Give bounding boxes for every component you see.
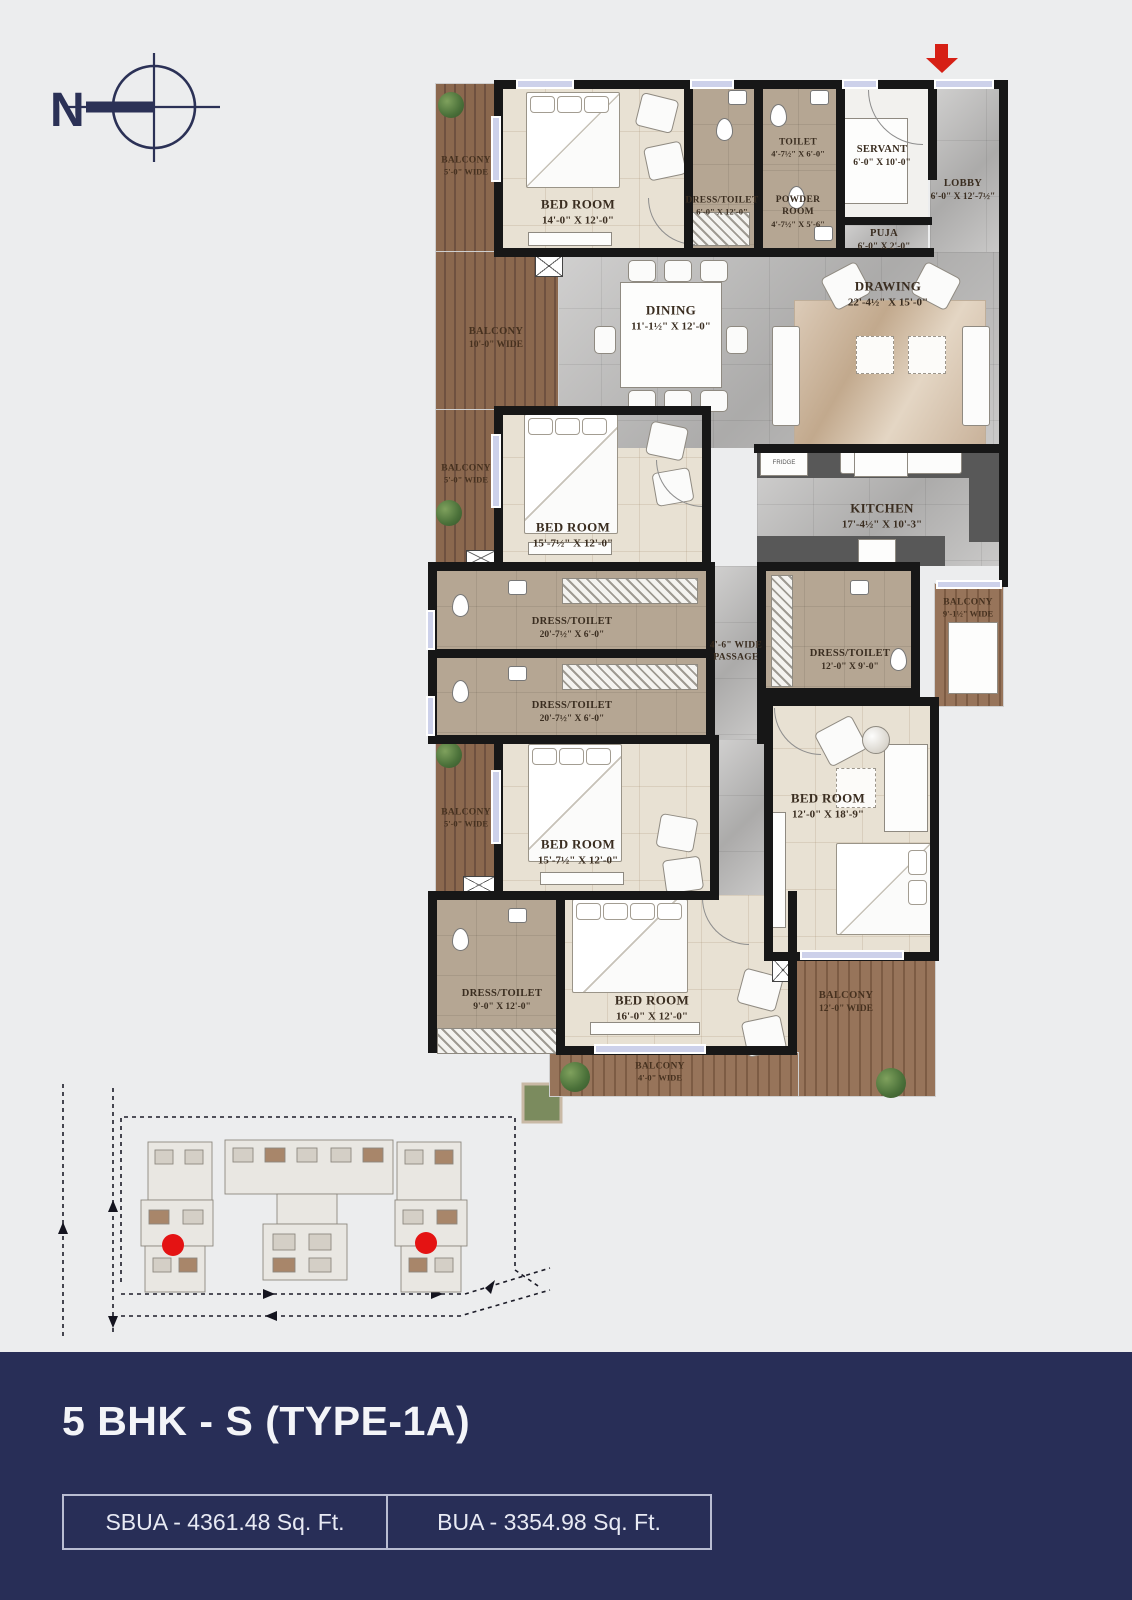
dining-chair [726,326,748,354]
room-label: 4'-6" WIDEPASSAGE [710,640,762,665]
entry-arrow-icon [926,58,958,73]
wall [754,444,1008,453]
unit-marker [415,1232,437,1254]
room-label: DRESS/TOILET6'-0" X 12'-0" [685,194,758,217]
plant [560,1062,590,1092]
sink-icon [850,580,869,595]
pillow [530,96,555,113]
footer-band: 5 BHK - S (TYPE-1A) SBUA - 4361.48 Sq. F… [0,1352,1132,1600]
toilet-icon [890,648,907,671]
pouf [862,726,890,754]
room-label: BED ROOM12'-0" X 18'-9" [791,790,865,821]
site-building-left [141,1142,213,1292]
pillow [576,903,601,920]
window [491,434,501,508]
room-label: DRESS/TOILET20'-7½" X 6'-0" [532,699,612,725]
seat-bench [884,744,928,832]
wall [428,562,715,571]
sink-icon [508,908,527,923]
dress-toilet-9x12-floor [436,895,558,1047]
wall [930,697,939,961]
dresser [528,232,612,246]
kitchen-sink [858,539,896,564]
ac-unit-box [535,255,563,277]
wall [836,80,845,257]
unit-marker [162,1234,184,1256]
toilet-icon [452,594,469,617]
room-label: BED ROOM15'-7½" X 12'-0" [538,836,618,867]
wall [684,80,693,257]
wall [428,891,437,1053]
room-label: BALCONY9'-1½" WIDE [943,596,993,619]
room-label: BALCONY5'-0" WIDE [441,806,491,829]
room-label: DRAWING22'-4½" X 15'-0" [848,278,928,309]
room-label: BALCONY5'-0" WIDE [441,154,491,177]
room-label: BED ROOM16'-0" X 12'-0" [615,992,689,1023]
pillow [557,96,582,113]
coffee-table [856,336,894,374]
compass-north-bar [86,102,154,113]
compass-north-label: N [50,84,85,137]
dining-chair [700,260,728,282]
site-building-center [225,1140,393,1280]
hob [854,450,908,477]
room-label: POWDERROOM4'-7½" X 5'-6" [771,194,825,230]
sink-icon [508,580,527,595]
wall [788,891,797,1055]
pillow [555,418,580,435]
pillow [532,748,557,765]
room-label: DINING11'-1½" X 12'-0" [631,302,711,333]
window [934,79,994,89]
dining-chair [628,260,656,282]
drawing-rug [794,300,986,450]
pillow [630,903,655,920]
toilet-icon [452,928,469,951]
fridge-label: FRIDGE [760,460,808,466]
room-label: BALCONY12'-0" WIDE [819,989,874,1015]
room-label: KITCHEN17'-4½" X 10'-3" [842,500,922,531]
pillow [908,880,927,905]
room-label: DRESS/TOILET12'-0" X 9'-0" [810,647,890,673]
dining-chair [664,260,692,282]
toilet-icon [716,118,733,141]
wall [428,649,715,658]
balcony-door [800,950,904,960]
pillow [908,850,927,875]
wall [556,891,565,1055]
balcony-planter [948,622,998,694]
wall [428,735,719,744]
wall [999,80,1008,587]
floor-plan-page: N [0,0,1132,1600]
room-label: LOBBY6'-0" X 12'-7½" [931,177,996,203]
room-label: DRESS/TOILET9'-0" X 12'-0" [462,987,542,1013]
toilet-icon [770,104,787,127]
road-arrow-icon [265,1311,277,1321]
wall [764,697,773,961]
window [594,1044,706,1054]
sink-icon [728,90,747,105]
lobby-floor [930,84,1004,252]
area-table: SBUA - 4361.48 Sq. Ft. BUA - 3354.98 Sq.… [62,1494,712,1550]
pillow [657,903,682,920]
wall [764,697,939,706]
pillow [528,418,553,435]
wall [836,217,932,225]
window [690,79,734,89]
room-label: BALCONY4'-0" WIDE [635,1060,685,1083]
armchair [655,813,698,853]
pillow [603,903,628,920]
balcony-12-deck [795,954,935,1096]
sink-icon [508,666,527,681]
wall [494,406,711,415]
pillow [582,418,607,435]
kitchen-counter [969,478,999,542]
pillow [584,96,609,113]
plant [436,500,462,526]
room-label: BALCONY10'-0" WIDE [469,325,524,351]
window [426,610,435,650]
room-label: PUJA6'-0" X 2'-0" [858,227,911,253]
entry-arrow-stem [935,44,948,59]
sofa [962,326,990,426]
road-arrow-icon [263,1289,275,1299]
armchair [662,856,704,895]
room-label: BALCONY5'-0" WIDE [441,462,491,485]
wall [911,562,920,697]
window [842,79,878,89]
dining-chair [594,326,616,354]
window [491,770,501,844]
plant [438,92,464,118]
room-label: TOILET4'-7½" X 6'-0" [771,136,825,159]
window [516,79,574,89]
wall [757,688,920,697]
wall [702,406,711,571]
window [426,696,435,736]
wall [710,735,719,900]
plant [436,742,462,768]
sink-icon [810,90,829,105]
wall [428,891,719,900]
site-plan [25,1082,570,1350]
pillow [586,748,611,765]
plan-title: 5 BHK - S (TYPE-1A) [62,1398,470,1445]
wall [928,80,937,180]
balcony-5-mid-deck [436,410,496,566]
road-arrow-icon [108,1316,118,1328]
site-building-right [395,1142,467,1292]
room-label: BED ROOM14'-0" X 12'-0" [541,196,615,227]
wardrobe [562,664,698,690]
room-label: BED ROOM15'-7½" X 12'-0" [533,519,613,550]
wardrobe [771,575,793,687]
compass: N [48,50,223,165]
room-label: SERVANT6'-0" X 10'-0" [853,143,911,169]
road-arrow-icon [108,1200,118,1212]
road-arrow-icon [485,1280,495,1294]
sofa [772,326,800,426]
bua-value: BUA - 3354.98 Sq. Ft. [388,1496,710,1548]
window [936,580,1002,589]
plant [876,1068,906,1098]
wall [754,80,763,257]
road-arrow-icon [58,1222,68,1234]
dresser [540,872,624,885]
window [491,116,501,182]
vestibule-floor [712,739,768,895]
sbua-value: SBUA - 4361.48 Sq. Ft. [64,1496,388,1548]
pillow [559,748,584,765]
dining-table [620,282,722,388]
coffee-table [908,336,946,374]
dresser [590,1022,700,1035]
wardrobe [437,1028,557,1054]
room-label: DRESS/TOILET20'-7½" X 6'-0" [532,615,612,641]
toilet-icon [452,680,469,703]
wall [757,562,920,571]
wardrobe [562,578,698,604]
